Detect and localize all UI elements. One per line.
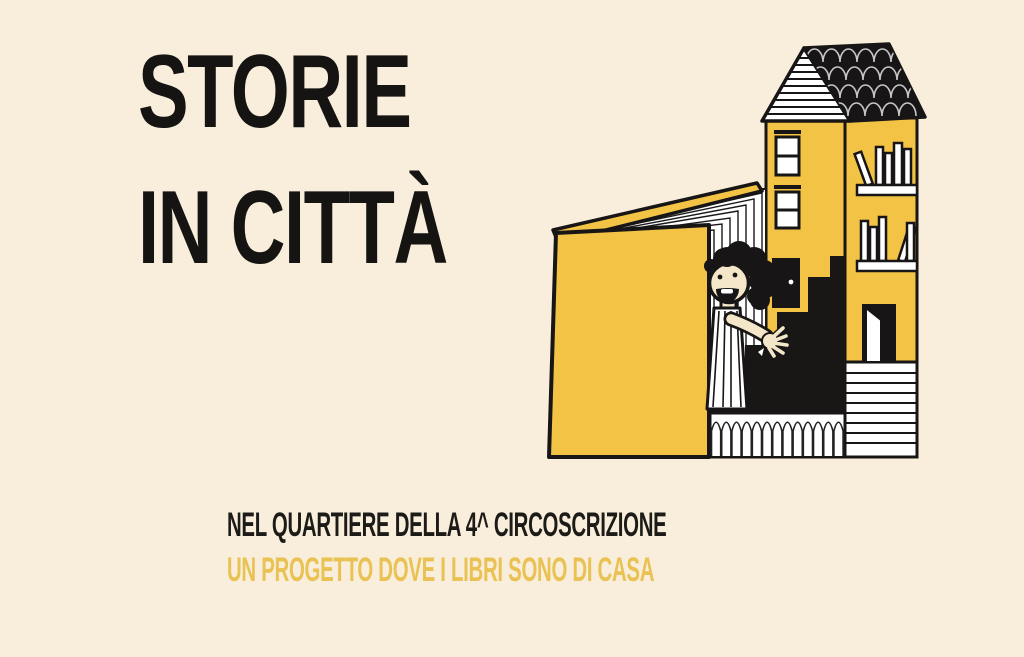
eye-left bbox=[718, 275, 723, 280]
page-title-line2: IN CITTÀ bbox=[138, 176, 447, 280]
book-house-illustration bbox=[540, 18, 932, 462]
right-wing bbox=[845, 118, 917, 457]
eye-right bbox=[733, 273, 738, 278]
striped-base-block bbox=[845, 362, 917, 457]
book-cover bbox=[549, 225, 709, 457]
subtitle-project: UN PROGETTO DOVE I LIBRI SONO DI CASA bbox=[227, 553, 654, 587]
window-top bbox=[774, 130, 801, 175]
arched-colonnade bbox=[710, 413, 845, 457]
page-title-line1: STORIE bbox=[138, 40, 410, 144]
bookshelf-bottom bbox=[857, 217, 917, 271]
window-bottom bbox=[774, 185, 801, 228]
small-open-door bbox=[862, 304, 896, 362]
poster: STORIE IN CITTÀ NEL QUARTIERE DELLA 4^ C… bbox=[0, 0, 1024, 657]
subtitle-district: NEL QUARTIERE DELLA 4^ CIRCOSCRIZIONE bbox=[227, 508, 666, 542]
